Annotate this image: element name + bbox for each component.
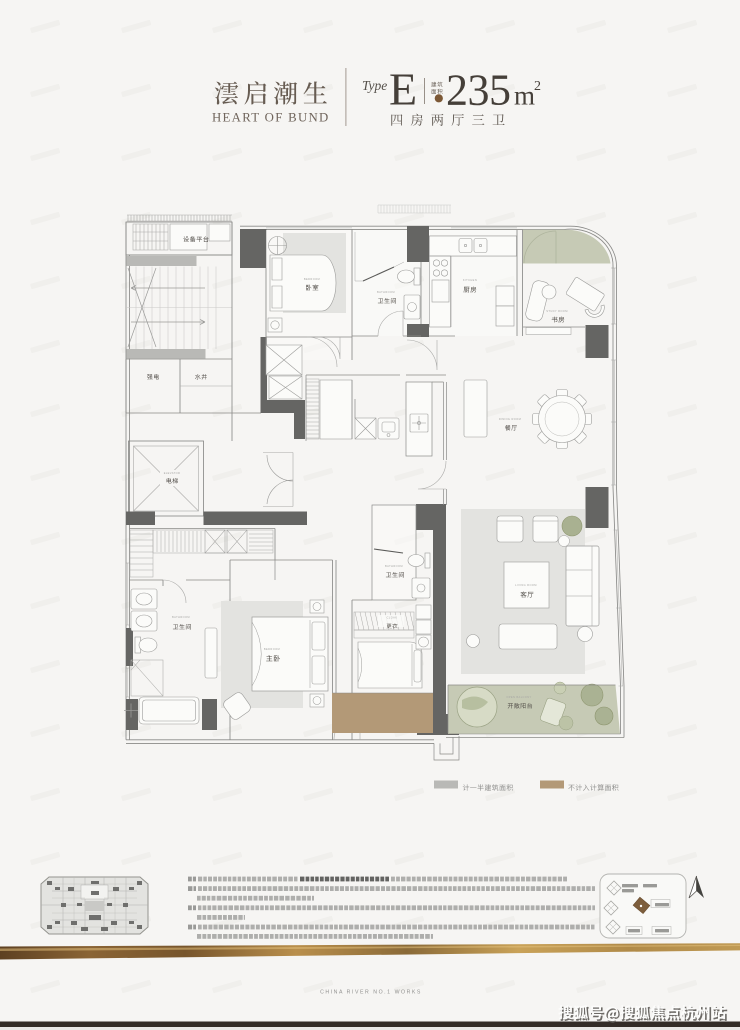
svg-text:Type: Type [362,78,387,93]
svg-text:STUDY ROOM: STUDY ROOM [546,309,568,313]
svg-text:BEDROOM: BEDROOM [264,647,280,651]
svg-text:LIVING ROOM: LIVING ROOM [515,583,537,587]
svg-text:E: E [389,64,417,115]
svg-text:HEART OF BUND: HEART OF BUND [212,111,330,125]
svg-text:KITCHEN: KITCHEN [463,278,477,282]
svg-text:DINING ROOM: DINING ROOM [499,417,521,421]
svg-text:2: 2 [534,79,541,94]
svg-text:BATHROOM: BATHROOM [377,290,395,294]
svg-text:BATHROOM: BATHROOM [385,564,403,568]
svg-text:ELEVATOR: ELEVATOR [164,471,181,475]
svg-text:CLOAK: CLOAK [387,616,398,620]
svg-text:OPEN BALCONY: OPEN BALCONY [506,695,531,699]
svg-text:BATHROOM: BATHROOM [172,615,190,619]
svg-text:BEDROOM: BEDROOM [304,277,320,281]
svg-text:235: 235 [446,66,511,115]
svg-text:m: m [514,81,535,111]
svg-text:CHINA RIVER NO.1 WORKS: CHINA RIVER NO.1 WORKS [320,990,422,996]
